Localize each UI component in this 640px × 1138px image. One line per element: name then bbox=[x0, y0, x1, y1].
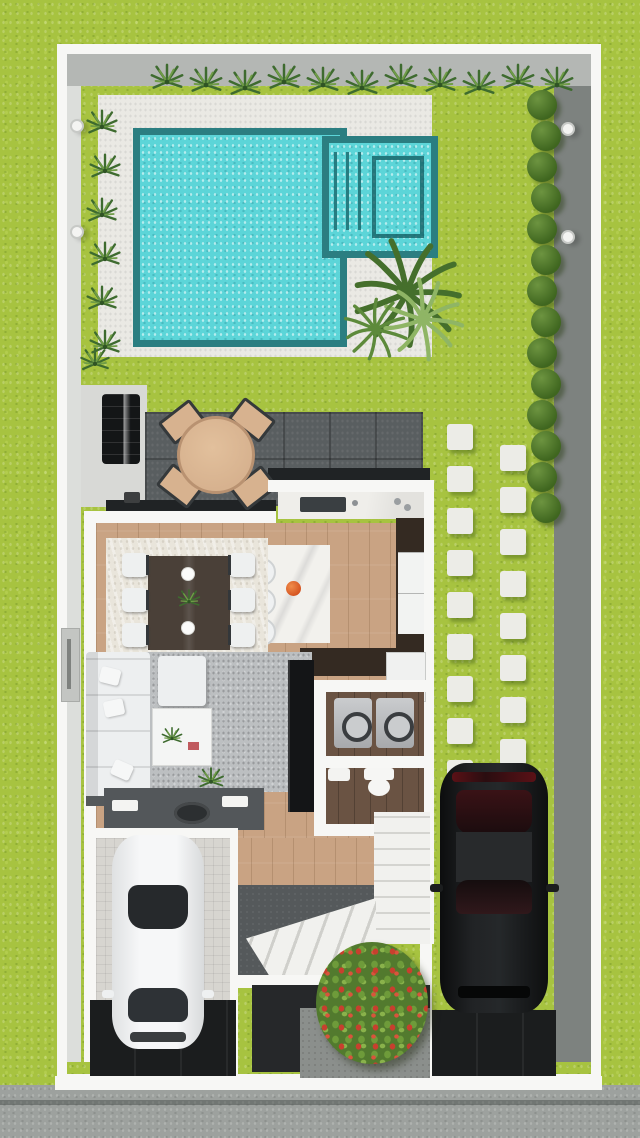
entry-dark-paving bbox=[252, 1006, 300, 1072]
table-plant-icon bbox=[160, 726, 184, 750]
black-car-roof bbox=[456, 832, 532, 882]
dining-chair bbox=[229, 553, 255, 577]
vanity-basin bbox=[174, 802, 210, 824]
dining-chair bbox=[122, 623, 148, 647]
kitchen-sink bbox=[300, 497, 346, 512]
bathroom-wall bbox=[314, 680, 326, 836]
street-joint-line bbox=[0, 1100, 640, 1105]
faucet-icon bbox=[352, 500, 358, 506]
wall-right-face bbox=[554, 86, 591, 1062]
plant-pot bbox=[124, 492, 140, 503]
pool-steps bbox=[334, 152, 368, 230]
black-car-mirror bbox=[430, 884, 443, 892]
washer bbox=[376, 698, 414, 748]
toilet-bowl bbox=[368, 778, 390, 796]
black-car-taillights bbox=[452, 772, 536, 782]
black-car-windshield bbox=[456, 880, 532, 914]
white-car-mirror bbox=[202, 990, 214, 998]
book bbox=[188, 742, 199, 750]
black-car-rear-glass bbox=[456, 790, 532, 834]
bathroom-sink bbox=[328, 768, 350, 781]
flowering-bush bbox=[316, 942, 428, 1064]
vanity-tray bbox=[112, 800, 138, 811]
dining-chair bbox=[229, 623, 255, 647]
round-patio-table bbox=[177, 416, 255, 494]
carport-driveway-apron bbox=[432, 1010, 556, 1076]
street bbox=[0, 1085, 640, 1138]
washer bbox=[334, 698, 372, 748]
centerpiece-plant-icon bbox=[176, 588, 202, 614]
vanity-plant-icon bbox=[196, 766, 226, 796]
cooktop-dot bbox=[404, 504, 411, 511]
wall-ac-unit bbox=[61, 628, 80, 702]
curb bbox=[55, 1076, 602, 1090]
black-car-mirror bbox=[546, 884, 559, 892]
white-car-windshield bbox=[128, 988, 188, 1022]
dining-chair bbox=[122, 553, 148, 577]
white-car-mirror bbox=[102, 990, 114, 998]
laundry-wall bbox=[314, 756, 432, 768]
refrigerator bbox=[398, 552, 424, 634]
house-wall bbox=[268, 480, 432, 492]
cooktop-dot bbox=[394, 498, 401, 505]
chaise-cushion bbox=[158, 656, 206, 706]
stair-upper-flight bbox=[374, 812, 430, 944]
house-wall bbox=[84, 511, 276, 523]
white-car-rear-glass bbox=[128, 885, 188, 929]
floor-plan-render bbox=[0, 0, 640, 1138]
vanity-tray bbox=[222, 796, 248, 807]
wall-left-face bbox=[67, 86, 81, 1062]
laundry-wall bbox=[314, 680, 432, 692]
swimming-pool bbox=[133, 128, 347, 347]
bbq-grill bbox=[102, 394, 140, 464]
dining-chair bbox=[229, 588, 255, 612]
black-car-grille bbox=[458, 986, 530, 998]
dinner-plate bbox=[182, 622, 194, 634]
dining-chair bbox=[122, 588, 148, 612]
wall-top-face bbox=[67, 54, 591, 86]
fruit-bowl bbox=[286, 581, 301, 596]
kitchen-north-wall-shadow bbox=[268, 468, 430, 480]
tv-wall-unit bbox=[288, 660, 314, 812]
dinner-plate bbox=[182, 568, 194, 580]
white-car-grille bbox=[130, 1032, 186, 1042]
spa-inner-bench bbox=[372, 156, 424, 238]
